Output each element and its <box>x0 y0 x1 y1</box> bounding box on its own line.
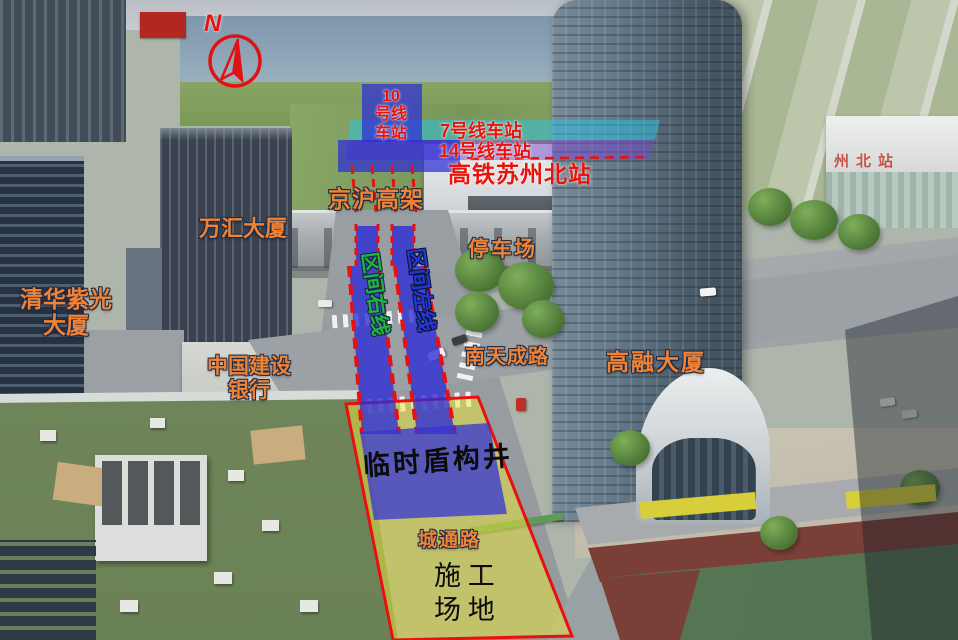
label-nantiancheng-road: 南天成路 <box>465 346 549 369</box>
north-arrow-icon <box>204 30 270 96</box>
label-chengtong-road: 城通路 <box>418 530 481 552</box>
label-gaorong-building: 高融大厦 <box>606 349 706 375</box>
label-wanhui-building: 万汇大厦 <box>199 216 287 241</box>
label-line10-station: 10 号线 车站 <box>366 88 416 143</box>
label-ccb-building: 中国建设 银行 <box>196 355 302 403</box>
aerial-photo: N 10 号线 车站 7号线车站 14号线车站 高铁苏州北站 京沪高架 万汇大厦… <box>0 0 958 640</box>
label-jinghu-viaduct: 京沪高架 <box>328 186 424 212</box>
label-hsr-station: 高铁苏州北站 <box>448 161 592 187</box>
label-parking-lot: 停车场 <box>468 238 537 262</box>
label-north-station-sign: 州北站 <box>834 153 900 170</box>
label-construction-yard: 施 工 场 地 <box>434 560 495 628</box>
label-line7-station: 7号线车站 <box>440 121 522 142</box>
label-line14-station: 14号线车站 <box>439 141 531 162</box>
label-qinghua-building: 清华紫光 大厦 <box>10 286 122 339</box>
